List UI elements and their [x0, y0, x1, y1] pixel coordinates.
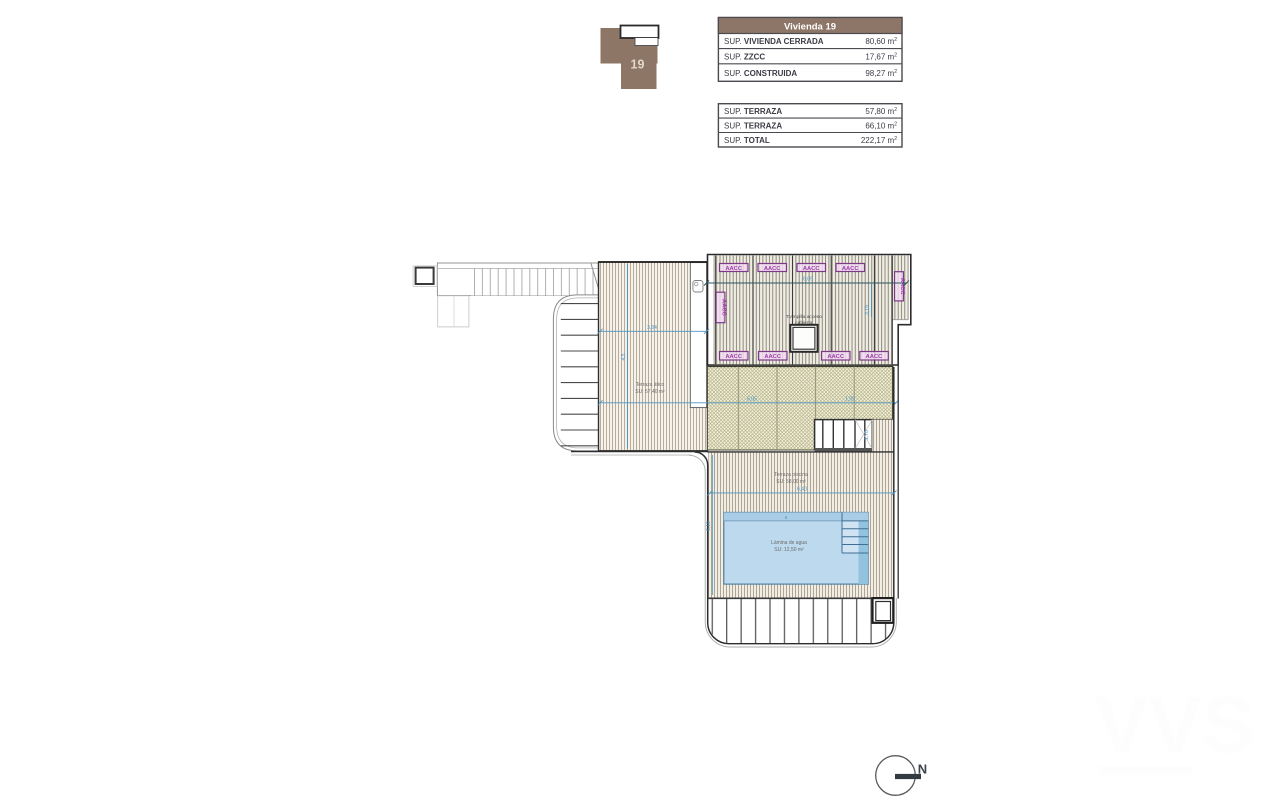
svg-text:19: 19	[631, 58, 645, 72]
svg-text:6,05: 6,05	[803, 277, 813, 283]
svg-text:AACC: AACC	[803, 266, 821, 272]
svg-text:cubierta: cubierta	[795, 320, 812, 326]
svg-text:4,5: 4,5	[621, 353, 627, 360]
svg-text:AACC: AACC	[899, 278, 905, 296]
svg-text:Lámina de agua: Lámina de agua	[771, 540, 807, 546]
svg-text:SUP. TERRAZA: SUP. TERRAZA	[724, 121, 782, 130]
svg-text:66,10 m2: 66,10 m2	[865, 121, 897, 130]
svg-text:Trampilla acceso: Trampilla acceso	[786, 314, 822, 320]
svg-text:222,17 m2: 222,17 m2	[861, 136, 897, 145]
svg-text:5,10: 5,10	[706, 521, 712, 531]
svg-text:Vivienda 19: Vivienda 19	[784, 21, 836, 32]
svg-text:SU: 57,40 m²: SU: 57,40 m²	[635, 389, 665, 395]
svg-text:SU: 58,00 m²: SU: 58,00 m²	[776, 479, 806, 485]
svg-text:Terraza ático: Terraza ático	[636, 382, 665, 388]
svg-text:Terraza piscina: Terraza piscina	[774, 472, 808, 478]
svg-text:3,84: 3,84	[647, 325, 657, 331]
svg-text:AACC: AACC	[764, 354, 782, 360]
svg-text:SU: 12,50 m²: SU: 12,50 m²	[774, 547, 804, 553]
svg-text:SUP. ZZCC: SUP. ZZCC	[724, 53, 765, 62]
svg-text:AACC: AACC	[725, 266, 743, 272]
svg-text:1,78: 1,78	[864, 430, 870, 440]
svg-text:AACC: AACC	[827, 354, 845, 360]
svg-text:57,80 m2: 57,80 m2	[865, 107, 897, 116]
svg-text:AACC: AACC	[725, 354, 743, 360]
svg-text:6,05: 6,05	[747, 396, 757, 402]
svg-text:AACC: AACC	[721, 299, 727, 317]
svg-text:17,67 m2: 17,67 m2	[865, 53, 897, 62]
svg-text:SUP. VIVIENDA CERRADA: SUP. VIVIENDA CERRADA	[724, 37, 824, 46]
svg-text:SUP. TOTAL: SUP. TOTAL	[724, 136, 770, 145]
svg-text:N: N	[918, 762, 927, 777]
svg-text:AACC: AACC	[842, 266, 860, 272]
svg-text:98,27 m2: 98,27 m2	[865, 69, 897, 78]
svg-text:AACC: AACC	[866, 354, 884, 360]
svg-text:3,15: 3,15	[865, 305, 871, 315]
svg-text:SUP. TERRAZA: SUP. TERRAZA	[724, 107, 782, 116]
svg-text:1,95: 1,95	[845, 396, 855, 402]
svg-text:80,60 m2: 80,60 m2	[865, 37, 897, 46]
svg-text:AACC: AACC	[764, 266, 782, 272]
svg-text:6,40: 6,40	[797, 486, 807, 492]
svg-text:5: 5	[785, 515, 788, 520]
svg-text:SUP. CONSTRUIDA: SUP. CONSTRUIDA	[724, 69, 797, 78]
svg-text:VVS: VVS	[1095, 680, 1255, 769]
